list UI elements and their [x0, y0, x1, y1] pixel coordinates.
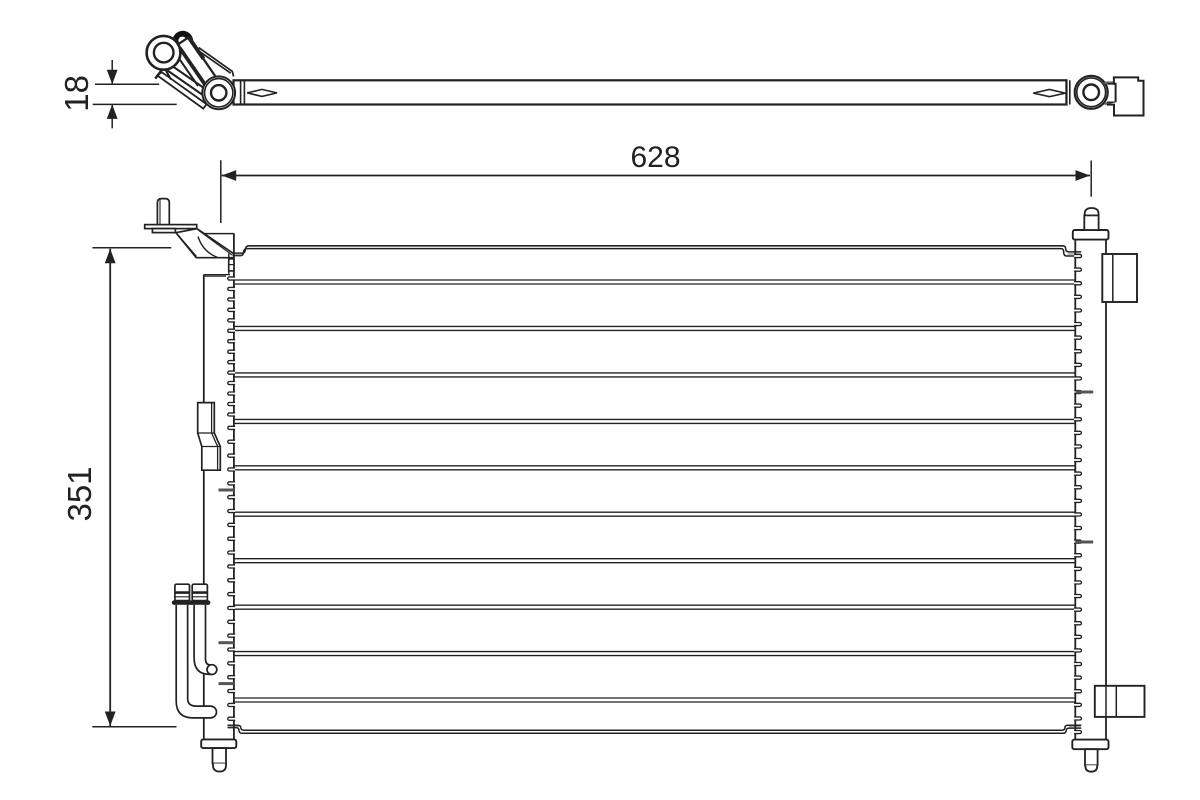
- svg-text:628: 628: [630, 141, 680, 174]
- svg-text:18: 18: [58, 75, 95, 112]
- svg-text:351: 351: [61, 466, 98, 521]
